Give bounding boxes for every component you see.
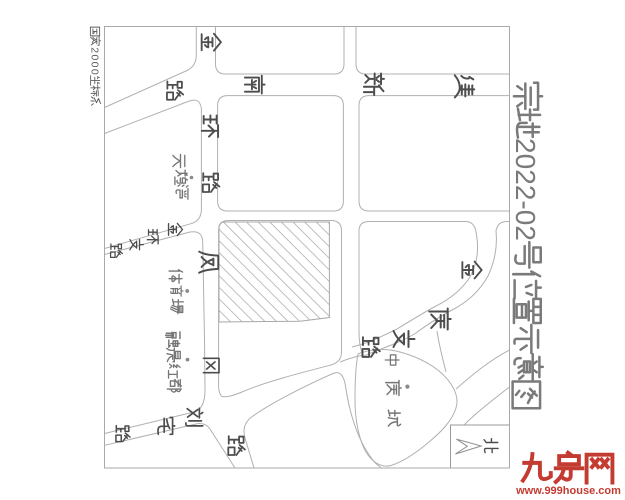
svg-text:-: - [510, 200, 541, 209]
svg-text:0: 0 [510, 154, 541, 170]
svg-text:2: 2 [510, 225, 541, 241]
svg-text:2: 2 [88, 47, 100, 53]
svg-text:www.999house.com: www.999house.com [515, 485, 621, 497]
svg-text:2: 2 [510, 138, 541, 154]
svg-text:0: 0 [510, 210, 541, 226]
svg-text:0: 0 [88, 54, 100, 60]
svg-text:2: 2 [510, 185, 541, 201]
svg-text:2: 2 [510, 169, 541, 185]
svg-text:0: 0 [88, 69, 100, 75]
svg-text:0: 0 [88, 62, 100, 68]
